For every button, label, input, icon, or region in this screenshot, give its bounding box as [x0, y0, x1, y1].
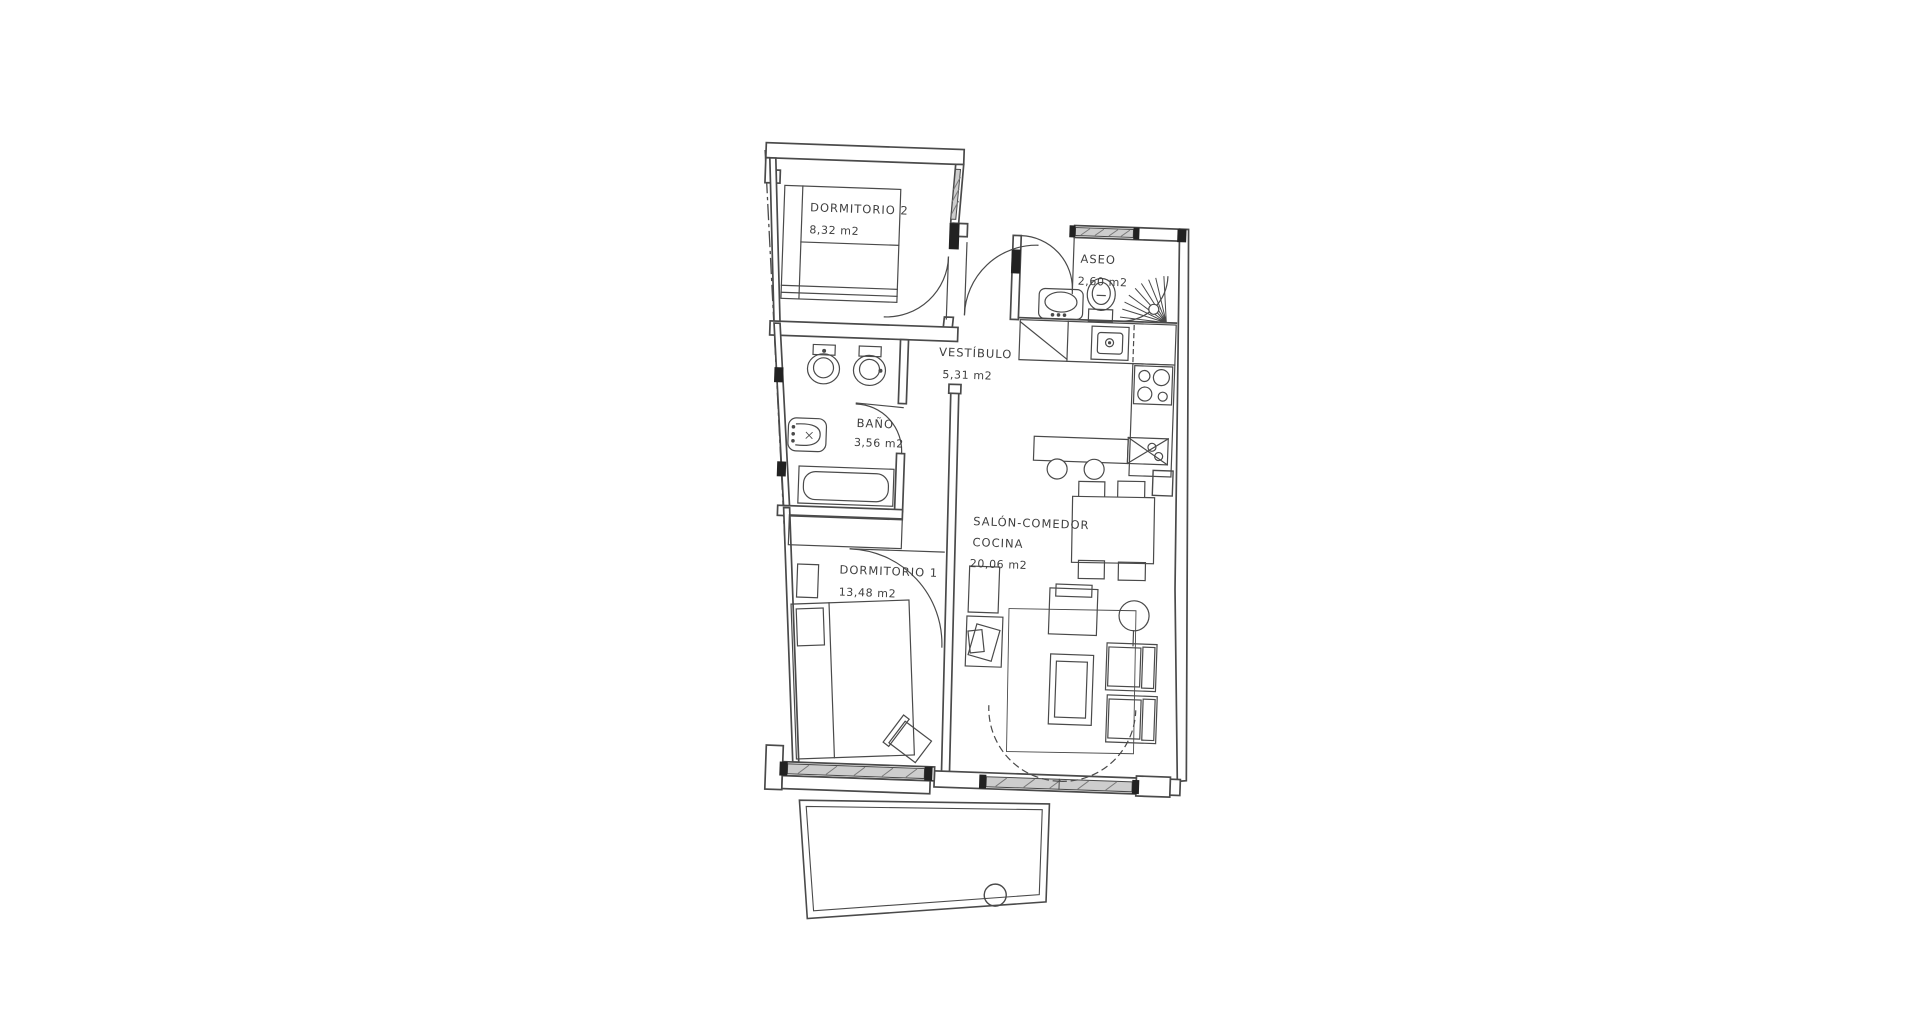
- room-area-bano: 3,56 m2: [854, 436, 904, 451]
- tv: [968, 624, 1000, 661]
- kitchen-cabinet-corner: [1019, 320, 1068, 362]
- jamb-dorm1-window-right: [924, 767, 932, 781]
- armchair-right-2: [1106, 695, 1158, 744]
- dining-chair-4: [1118, 562, 1145, 580]
- jamb-aseo-window-left: [1069, 225, 1075, 237]
- jamb-bano-west-lower: [777, 461, 787, 476]
- wall-bano-west: [768, 323, 796, 508]
- entrance-door: [964, 243, 1037, 317]
- kitchen: [1015, 320, 1176, 483]
- wall-salon-partition: [938, 388, 963, 771]
- dorm1-bed: [791, 600, 914, 759]
- side-table-round: [1118, 600, 1150, 646]
- kitchen-sink: [1091, 326, 1129, 360]
- wall-bano-east-lower: [895, 453, 905, 511]
- bar-stool-1: [1047, 459, 1068, 480]
- room-area-aseo: 2,60 m2: [1077, 275, 1127, 290]
- jamb-salon-window-left: [979, 774, 986, 788]
- wall-bano-east-upper: [898, 339, 908, 403]
- wall-east: [1160, 229, 1205, 782]
- pillar: [1152, 470, 1173, 496]
- wall-se-corner-block: [1136, 776, 1171, 797]
- room-label-bano: BAÑO: [856, 415, 894, 431]
- terrace-drain: [984, 884, 1007, 907]
- jamb-salon-window-right: [1132, 780, 1139, 794]
- room-label-aseo: ASEO: [1080, 252, 1116, 267]
- kitchen-hob: [1133, 366, 1172, 405]
- room-label-salon-line2: COCINA: [972, 535, 1023, 551]
- floor-plan-drawing: DORMITORIO 2 8,32 m2 ASEO 2,60 m2 VESTÍB…: [0, 0, 1920, 1024]
- room-area-dormitorio-1: 13,48 m2: [838, 585, 896, 600]
- room-label-dormitorio-1: DORMITORIO 1: [839, 562, 938, 579]
- dorm2-door: [884, 255, 948, 319]
- bano-bidet: [853, 346, 886, 386]
- jamb-aseo-west: [1011, 249, 1021, 273]
- room-area-dormitorio-2: 8,32 m2: [809, 223, 859, 238]
- rug: [1007, 609, 1136, 754]
- aseo-sink: [1038, 288, 1083, 320]
- room-area-vestibulo: 5,31 m2: [942, 368, 992, 383]
- terrace: [795, 795, 1049, 927]
- bar-stool-2: [1084, 459, 1105, 480]
- jamb-dorm1-window-left: [779, 762, 787, 776]
- floor-plan-page: DORMITORIO 2 8,32 m2 ASEO 2,60 m2 VESTÍB…: [0, 0, 1920, 1024]
- room-area-salon: 20,06 m2: [970, 557, 1028, 572]
- kitchen-dishwasher-divider: [1133, 326, 1134, 362]
- jamb-bano-west-upper: [774, 367, 784, 382]
- kitchen-island: [1033, 436, 1128, 481]
- aseo-door: [1019, 236, 1074, 294]
- jamb-aseo-ne: [1177, 229, 1186, 242]
- wall-partition-cap: [949, 384, 961, 393]
- jamb-aseo-window-right: [1133, 228, 1139, 240]
- room-label-dormitorio-2: DORMITORIO 2: [810, 200, 909, 217]
- room-label-vestibulo: VESTÍBULO: [939, 344, 1013, 362]
- armchair-right-1: [1105, 643, 1157, 692]
- dorm1-furniture: [781, 515, 942, 766]
- dorm1-night-table: [797, 564, 819, 598]
- terrace-outline: [795, 795, 1049, 927]
- jamb-dorm2-door: [949, 223, 960, 249]
- living-room: [962, 566, 1161, 757]
- wall-dorm2-north: [766, 143, 964, 165]
- coffee-table: [1048, 654, 1093, 725]
- wall-dorm2-south: [770, 321, 958, 342]
- bano-bathtub: [798, 466, 894, 506]
- dorm1-chair: [883, 715, 934, 765]
- bano-sink: [788, 418, 827, 452]
- bano-toilet: [807, 344, 840, 384]
- terrace-inner-line: [803, 801, 1043, 918]
- kitchen-corner-unit: [1127, 437, 1168, 464]
- tv-unit: [965, 566, 1004, 667]
